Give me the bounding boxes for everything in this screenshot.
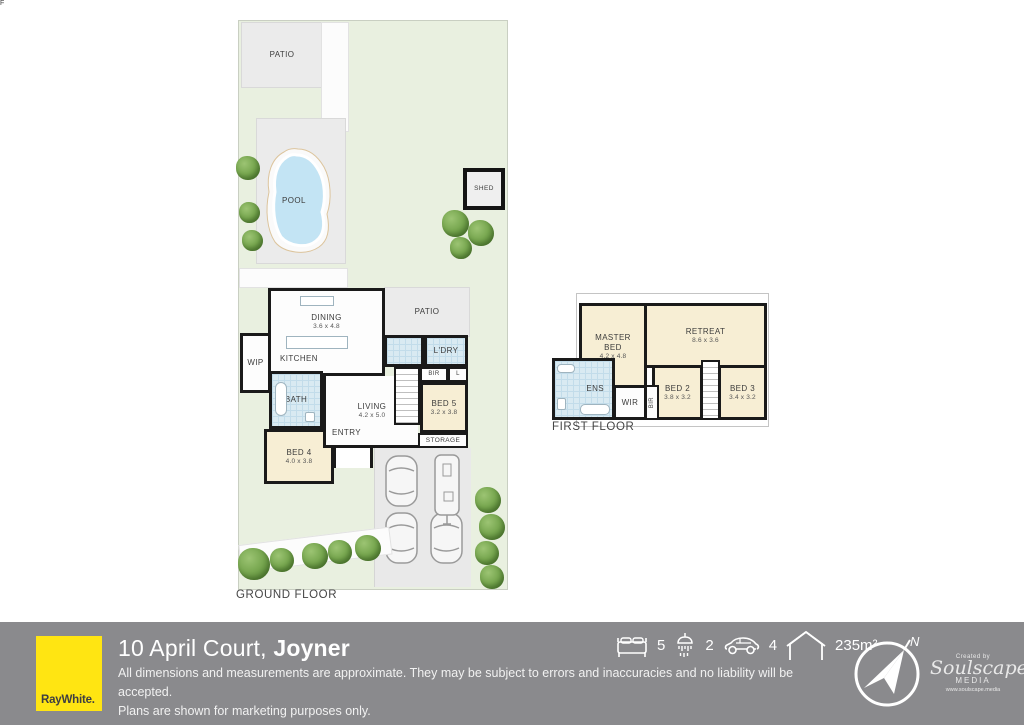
room-bed5: BED 5 3.2 x 3.8 (420, 382, 468, 433)
tree-icon (242, 230, 263, 251)
tree-icon (442, 210, 469, 237)
ground-floor-label: GROUND FLOOR (236, 589, 337, 601)
retreat-label: RETREAT (686, 327, 726, 336)
bir-label: BIR (428, 371, 439, 378)
tree-icon (355, 535, 381, 561)
bathtub (275, 382, 287, 416)
disclaimer: All dimensions and measurements are appr… (118, 664, 838, 721)
master-bed-label: MASTER BED (590, 333, 636, 351)
pool-label: POOL (282, 196, 306, 205)
bed-icon (616, 634, 648, 658)
car-stat-icon (723, 634, 760, 658)
living-dims: 4.2 x 5.0 (359, 412, 386, 419)
dining-label: DINING (311, 313, 341, 322)
room-bed2: BED 2 3.8 x 3.2 (652, 365, 703, 420)
tree-icon (238, 548, 270, 580)
raywhite-logo-text: RayWhite. (41, 694, 95, 706)
vanity (557, 364, 575, 373)
bed2-dims: 3.8 x 3.2 (664, 394, 691, 401)
disclaimer-line2: Plans are shown for marketing purposes o… (118, 702, 838, 721)
kitchen-label: KITCHEN (280, 354, 318, 363)
compass-north-letter: N (910, 634, 920, 649)
dining-dims: 3.6 x 4.8 (311, 323, 341, 330)
address-suburb: Joyner (273, 635, 350, 661)
laundry-label: L'DRY (434, 346, 459, 355)
room-wip: WIP (240, 333, 271, 393)
bed4-dims: 4.0 x 3.8 (286, 458, 313, 465)
yard-patio-label: PATIO (270, 50, 295, 59)
tree-icon (475, 487, 501, 513)
living-label: LIVING (358, 402, 387, 411)
storage-label: STORAGE (426, 437, 460, 444)
shed: SHED (463, 168, 505, 210)
raywhite-logo: RayWhite. (36, 636, 102, 711)
yard-patio: PATIO (241, 22, 323, 88)
linen-label: L (456, 371, 460, 378)
creator-credit: Created by Soulscape MEDIA www.soulscape… (930, 654, 1016, 693)
baths-count: 2 (705, 637, 713, 654)
entry-porch (333, 448, 373, 468)
tree-icon (270, 548, 294, 572)
address-street: 10 April Court, (118, 635, 273, 661)
bed3-dims: 3.4 x 3.2 (729, 394, 756, 401)
stairs-ground (394, 367, 420, 425)
bathtub (580, 404, 610, 415)
house-patio-label: PATIO (415, 307, 440, 316)
caravan-icon (431, 452, 463, 530)
entry-label: ENTRY (332, 428, 361, 437)
kitchen-island (286, 336, 348, 349)
shed-label: SHED (474, 185, 494, 192)
walkway (321, 22, 349, 132)
wip-label: WIP (247, 358, 263, 367)
disclaimer-line1: All dimensions and measurements are appr… (118, 664, 838, 702)
room-wir: WIR (613, 385, 647, 420)
soulscape-logo-text: Soulscape (930, 660, 1016, 676)
tree-icon (236, 156, 260, 180)
room-retreat: RETREAT 8.6 x 3.6 (644, 303, 767, 368)
walkway (239, 268, 348, 288)
bed5-label: BED 5 (431, 399, 456, 408)
house-area-icon (786, 630, 826, 661)
property-stats: 5 2 4 235m² (616, 630, 878, 661)
room-laundry: L'DRY (424, 335, 468, 367)
tree-icon (302, 543, 328, 569)
closet-bir-first: BIR (645, 385, 659, 420)
bath-label: BATH (285, 395, 307, 404)
bir-first-label: BIR (649, 397, 656, 408)
fridge-label: F (0, 0, 5, 8)
tree-icon (475, 541, 499, 565)
car-icon (383, 453, 420, 509)
shower-icon (674, 632, 696, 659)
property-address: 10 April Court, Joyner (118, 635, 350, 662)
tree-icon (239, 202, 260, 223)
compass-icon: N (852, 632, 926, 712)
cars-count: 4 (769, 637, 777, 654)
tree-icon (450, 237, 472, 259)
room-storage: STORAGE (418, 433, 468, 448)
beds-count: 5 (657, 637, 665, 654)
room-bed3: BED 3 3.4 x 3.2 (718, 365, 767, 420)
wir-label: WIR (622, 398, 639, 407)
floorplan-page: PATIO POOL SHED PATIO DINING 3.6 x 4.8 K… (0, 0, 1024, 725)
house-patio: PATIO (384, 287, 470, 337)
closet-linen: L (448, 367, 468, 382)
bed3-label: BED 3 (730, 384, 755, 393)
bed4-label: BED 4 (286, 448, 311, 457)
bed2-label: BED 2 (665, 384, 690, 393)
tree-icon (480, 565, 504, 589)
tree-icon (479, 514, 505, 540)
soulscape-url: www.soulscape.media (930, 687, 1016, 693)
ensuite-label: ENS (586, 384, 604, 393)
retreat-dims: 8.6 x 3.6 (692, 337, 719, 344)
room-wc (384, 335, 424, 367)
kitchen-bench (300, 296, 334, 306)
toilet (305, 412, 315, 422)
tree-icon (468, 220, 494, 246)
toilet (557, 398, 566, 410)
tree-icon (328, 540, 352, 564)
bed5-dims: 3.2 x 3.8 (431, 409, 458, 416)
closet-bir: BIR (420, 367, 448, 382)
first-floor-label: FIRST FLOOR (552, 421, 634, 433)
